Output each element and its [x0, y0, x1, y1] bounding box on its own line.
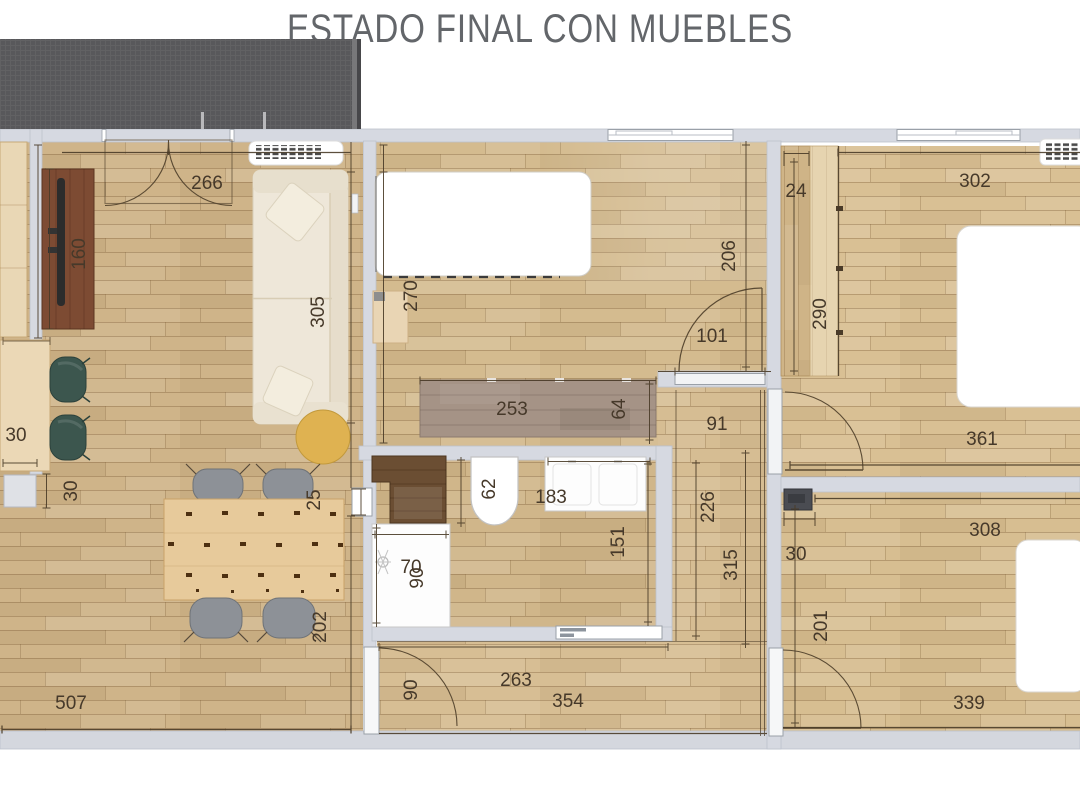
svg-text:266: 266 [191, 173, 223, 194]
svg-text:201: 201 [811, 610, 832, 642]
svg-text:101: 101 [696, 326, 728, 347]
svg-text:202: 202 [310, 611, 331, 643]
svg-text:91: 91 [706, 414, 727, 435]
svg-text:62: 62 [479, 478, 500, 499]
svg-text:160: 160 [69, 238, 90, 270]
svg-text:30: 30 [61, 480, 82, 501]
svg-text:354: 354 [552, 691, 584, 712]
svg-text:151: 151 [608, 526, 629, 558]
svg-text:30: 30 [5, 425, 26, 446]
svg-text:90: 90 [407, 567, 428, 588]
svg-text:90: 90 [401, 679, 422, 700]
svg-text:315: 315 [721, 549, 742, 581]
svg-text:25: 25 [304, 489, 325, 510]
svg-text:339: 339 [953, 693, 985, 714]
svg-text:308: 308 [969, 520, 1001, 541]
svg-text:253: 253 [496, 399, 528, 420]
svg-text:290: 290 [810, 298, 831, 330]
svg-text:270: 270 [401, 280, 422, 312]
svg-text:64: 64 [609, 398, 630, 420]
svg-text:302: 302 [959, 171, 991, 192]
svg-text:24: 24 [785, 181, 807, 202]
svg-text:305: 305 [308, 296, 329, 328]
svg-text:183: 183 [535, 487, 567, 508]
svg-text:ESTADO FINAL CON MUEBLES: ESTADO FINAL CON MUEBLES [287, 7, 793, 51]
svg-text:263: 263 [500, 670, 532, 691]
svg-text:30: 30 [785, 544, 806, 565]
svg-text:507: 507 [55, 693, 87, 714]
svg-text:206: 206 [719, 240, 740, 272]
svg-text:226: 226 [698, 491, 719, 523]
svg-text:361: 361 [966, 429, 998, 450]
